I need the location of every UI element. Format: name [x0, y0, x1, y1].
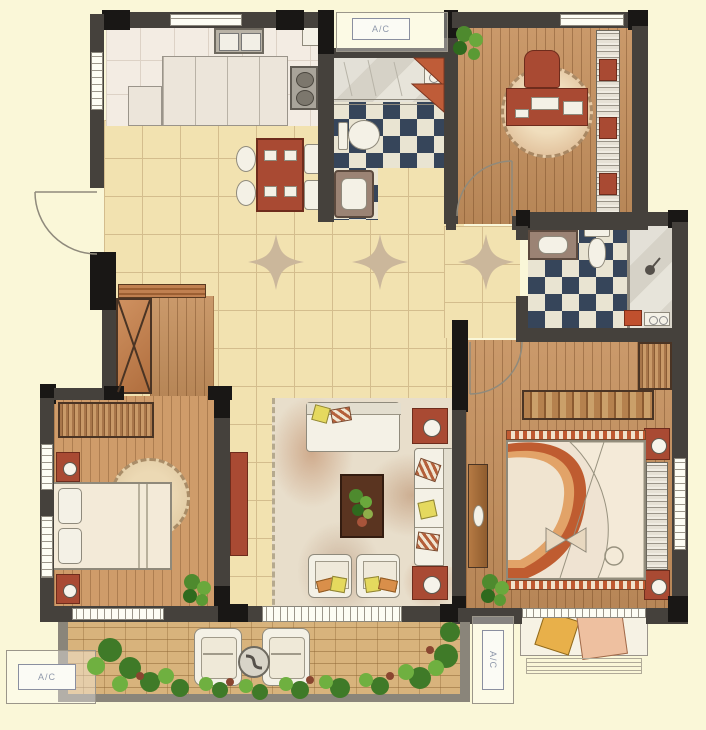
study-plant [453, 26, 483, 60]
showerhead-icon [645, 258, 660, 275]
coffee-table-plant [349, 489, 373, 527]
bath1-corner-shelf [412, 58, 444, 112]
master-door-swing [470, 342, 522, 394]
study-door-swing [457, 161, 512, 216]
master-plant [481, 574, 509, 606]
shower-streaks [344, 60, 402, 96]
entry-door-swing [35, 192, 97, 254]
bedroom2-plant [183, 574, 211, 606]
tile-star-motifs [248, 234, 514, 290]
floor-plan: A/C A/C A/C [0, 0, 706, 730]
wardrobe-x-mark [118, 300, 150, 392]
master-bed-quilt [508, 442, 644, 578]
balcony-table [239, 647, 269, 677]
overlay-graphics [0, 0, 706, 730]
balcony-garden-plants [87, 622, 460, 700]
